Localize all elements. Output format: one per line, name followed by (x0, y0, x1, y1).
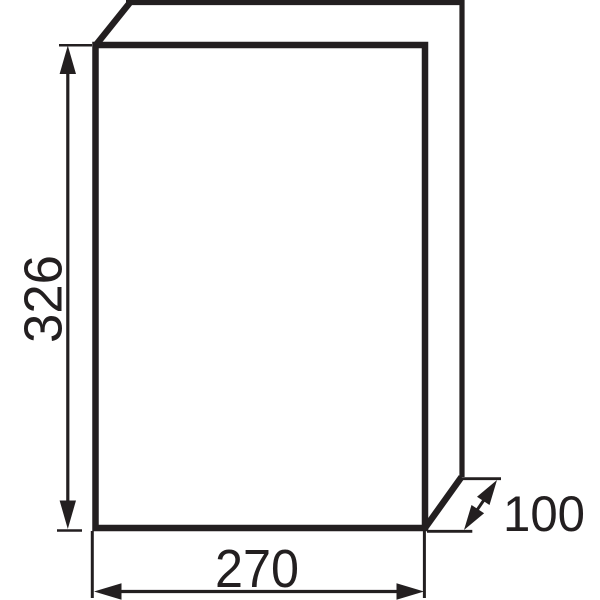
svg-text:270: 270 (215, 539, 299, 599)
svg-text:326: 326 (14, 255, 74, 343)
svg-text:100: 100 (503, 486, 585, 542)
